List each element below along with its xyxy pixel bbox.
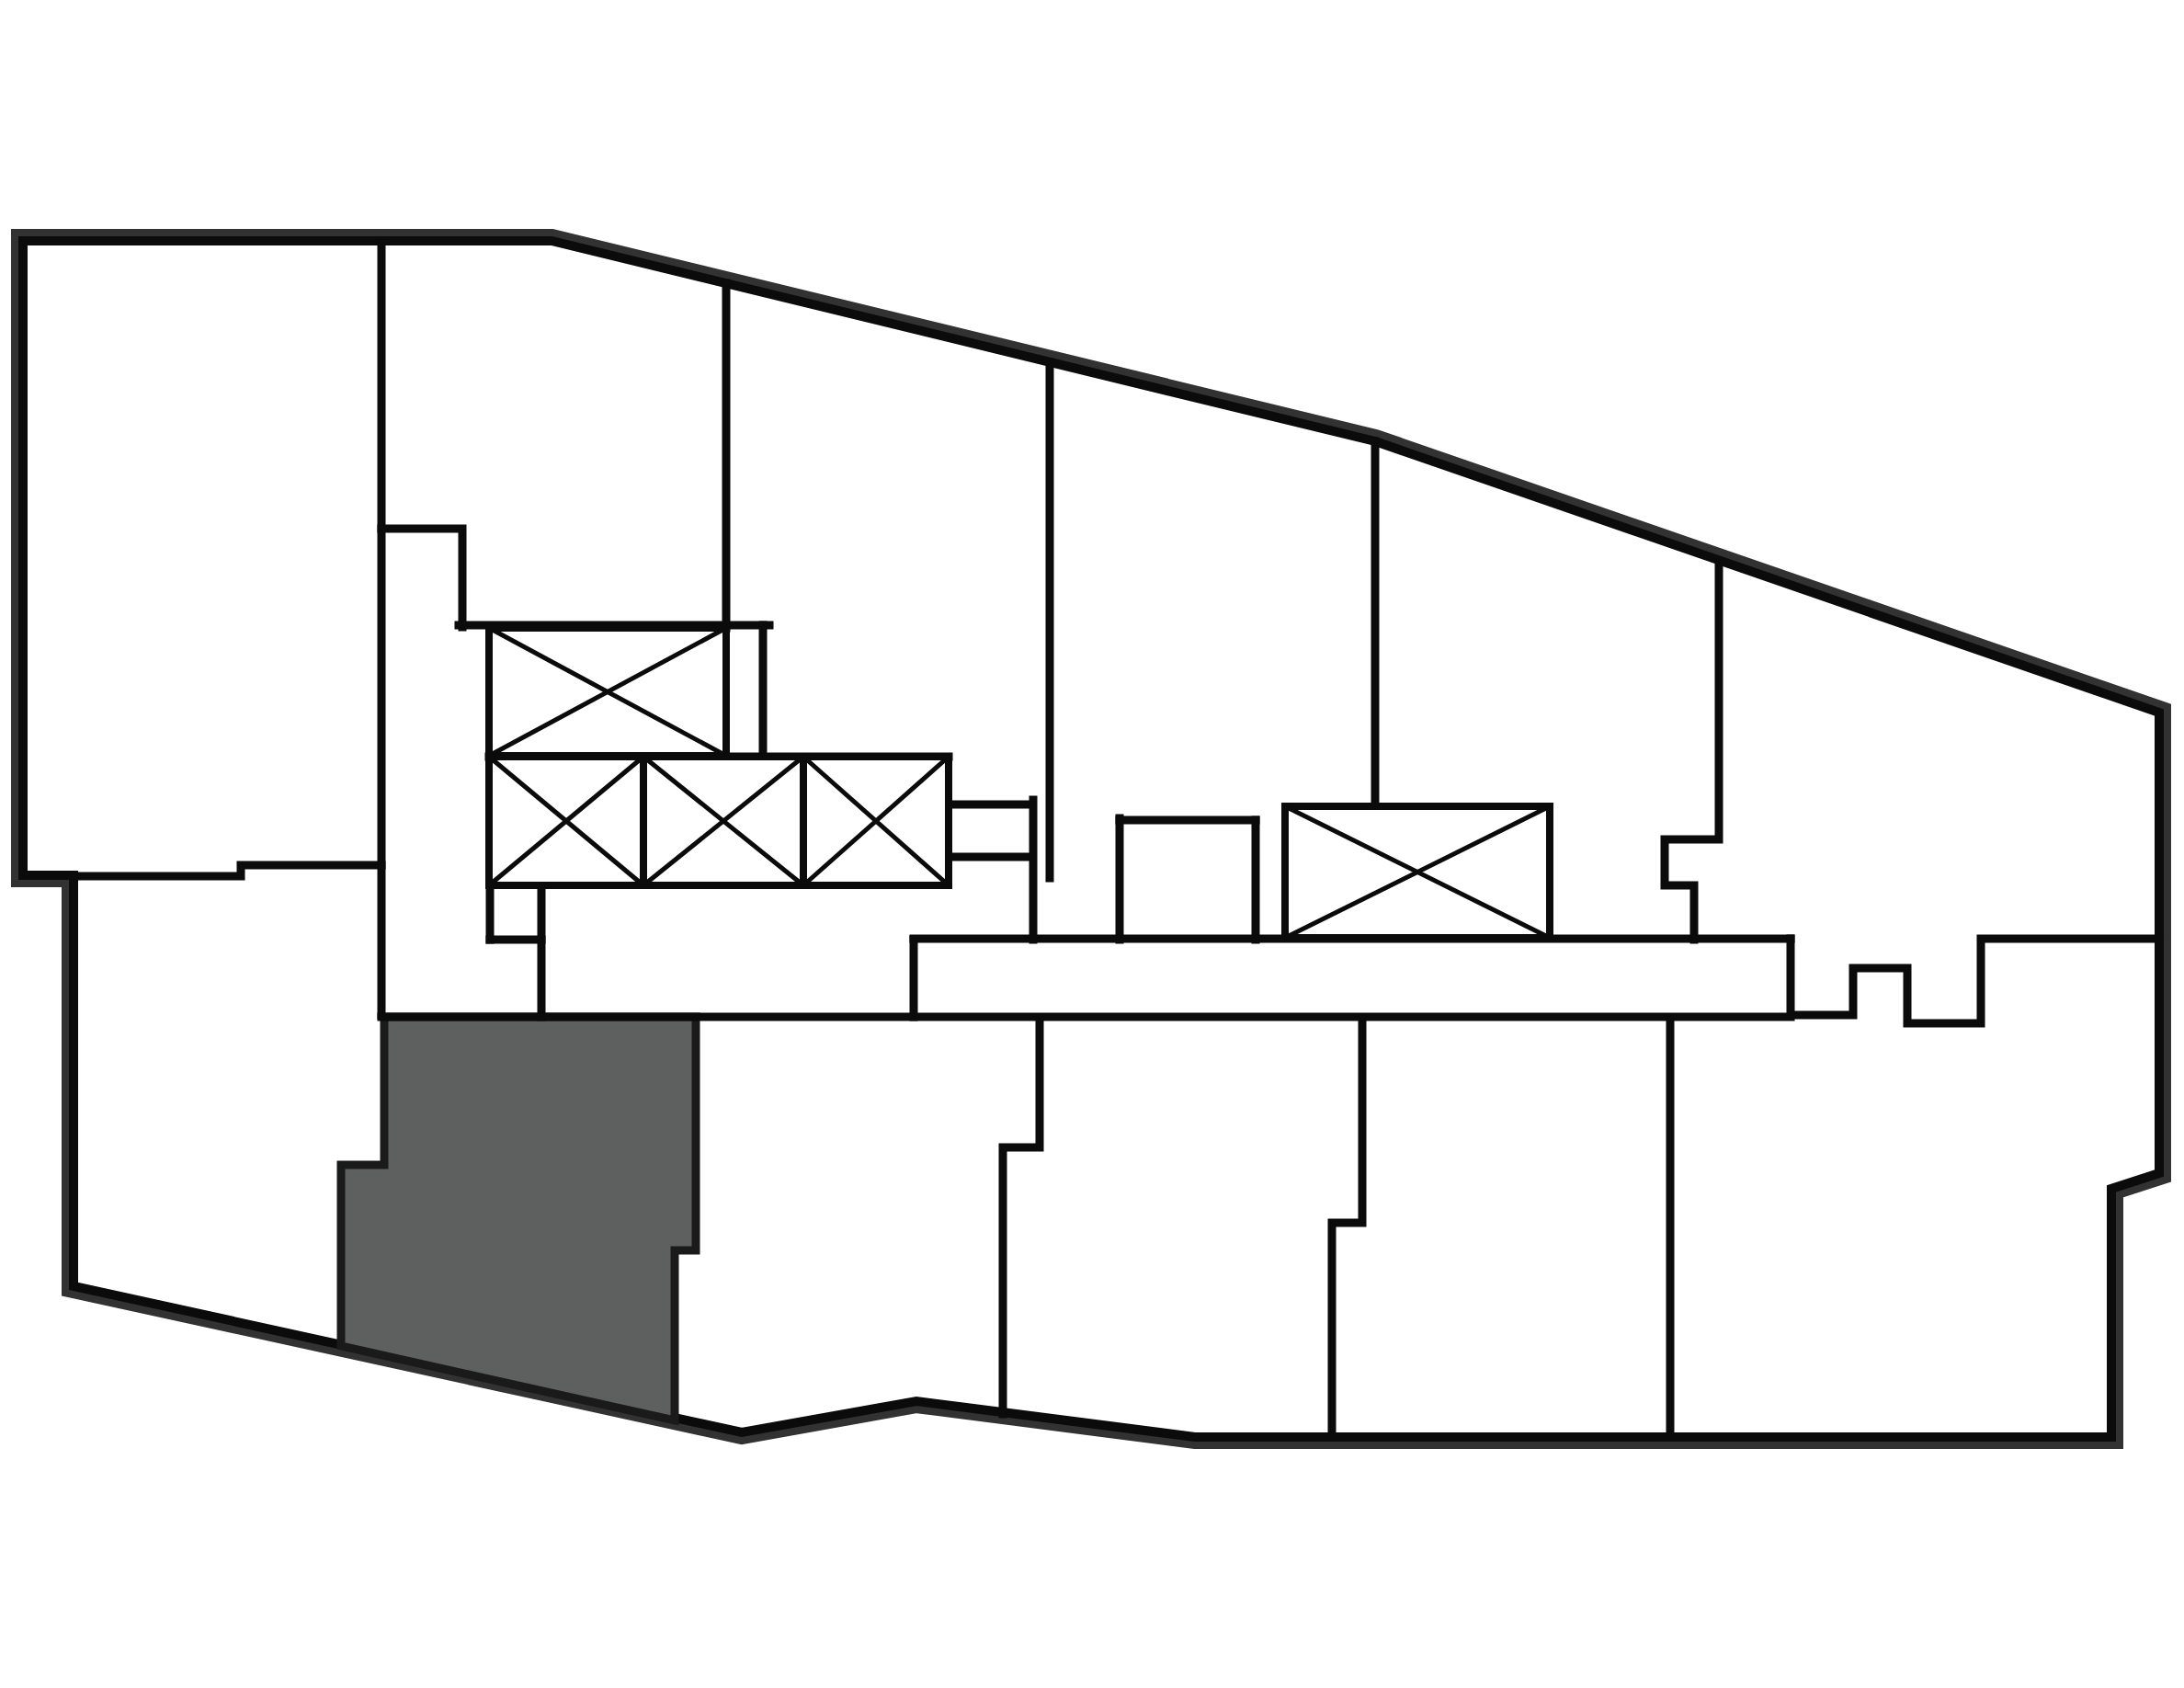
floorplan-page xyxy=(0,0,2184,1688)
floorplan-keyplate xyxy=(0,0,2184,1688)
selected-unit[interactable] xyxy=(341,1017,696,1420)
